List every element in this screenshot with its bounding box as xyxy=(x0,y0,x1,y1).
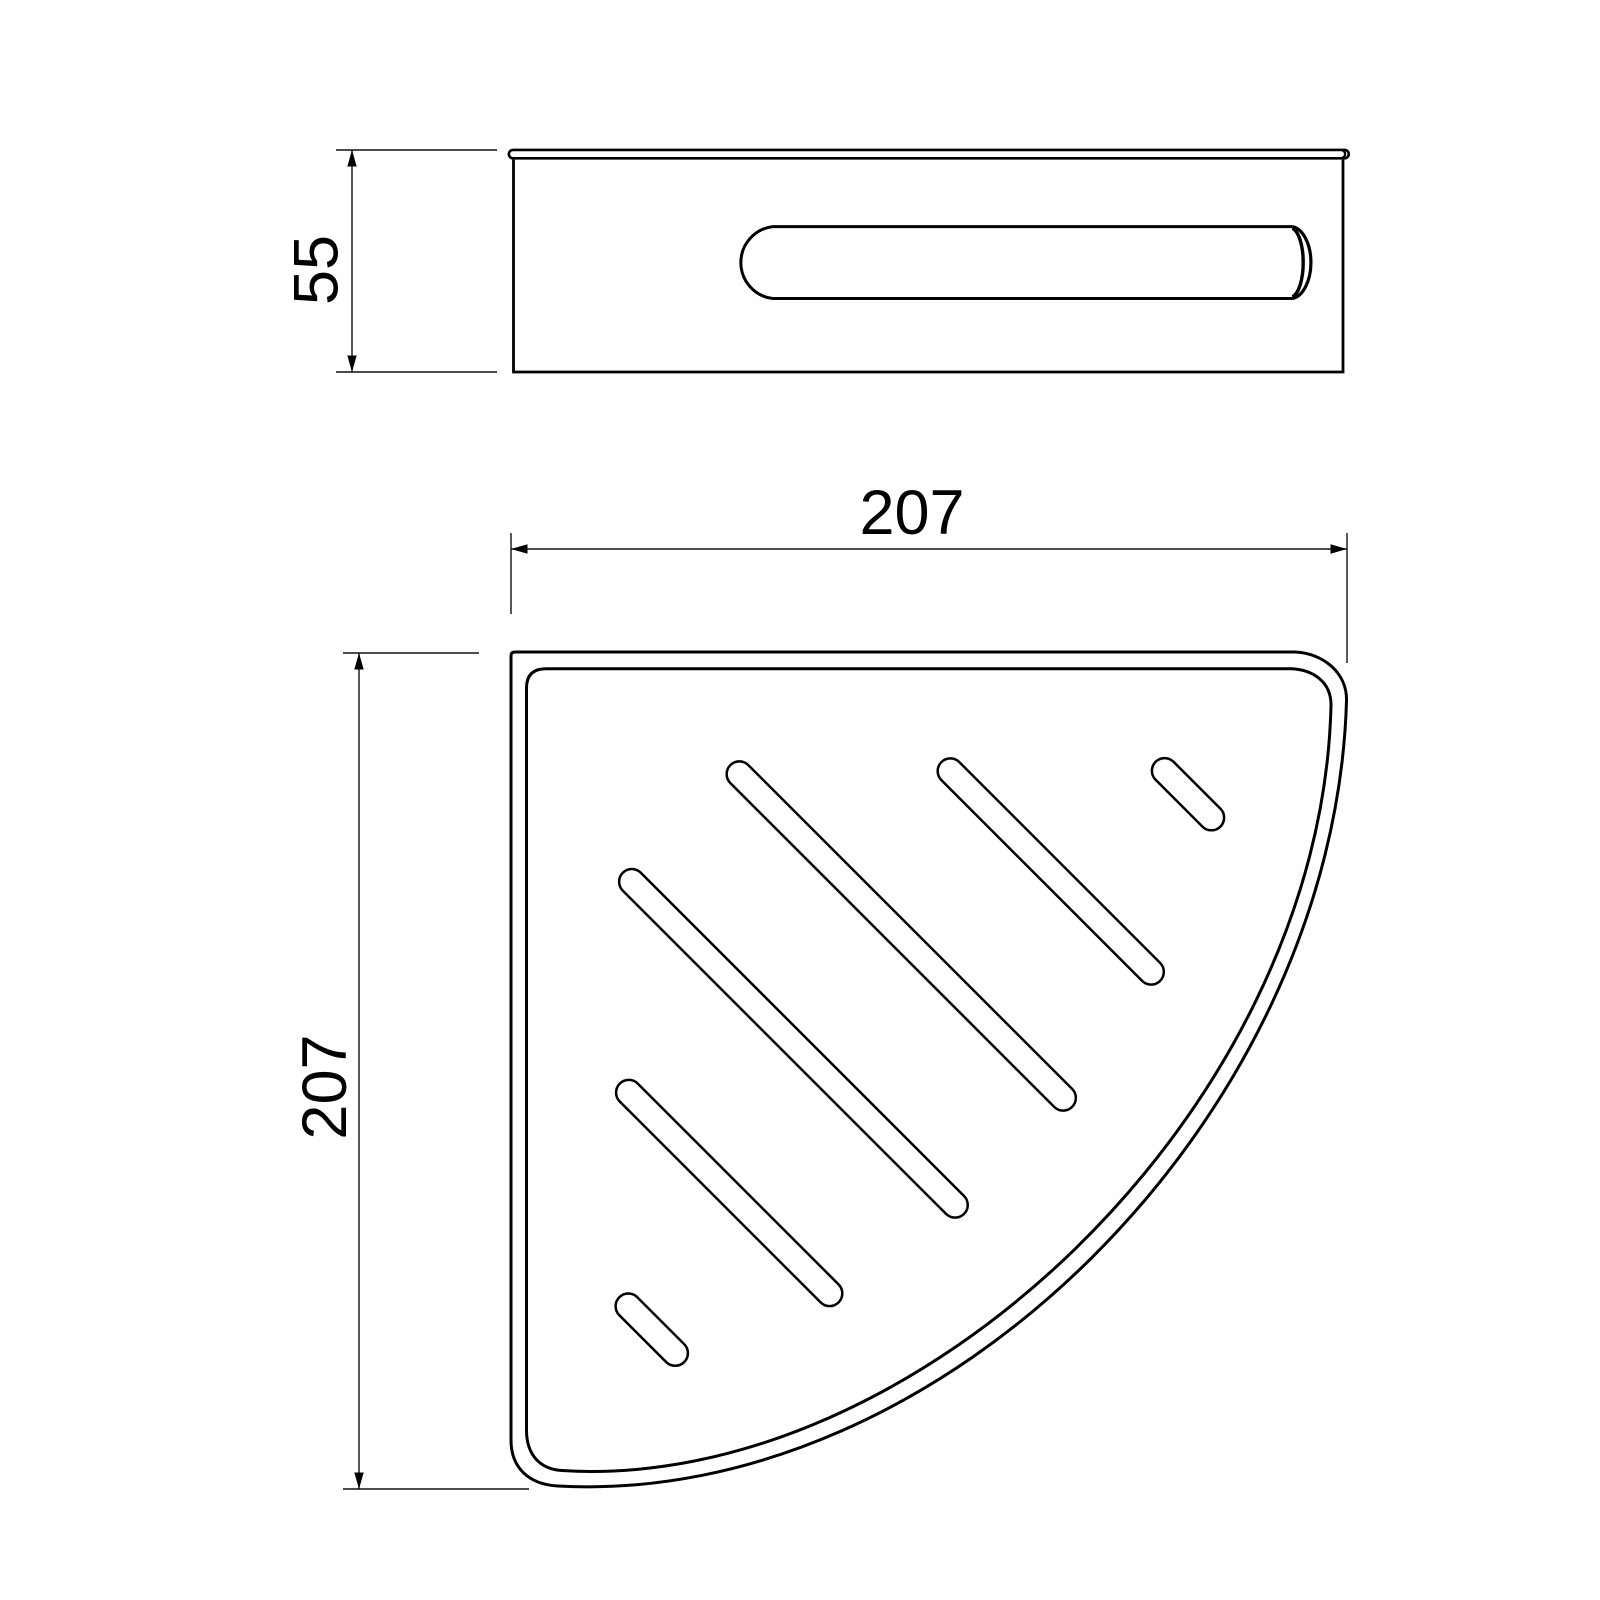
svg-text:207: 207 xyxy=(290,1034,360,1139)
svg-text:55: 55 xyxy=(282,235,352,305)
svg-text:207: 207 xyxy=(859,478,964,548)
